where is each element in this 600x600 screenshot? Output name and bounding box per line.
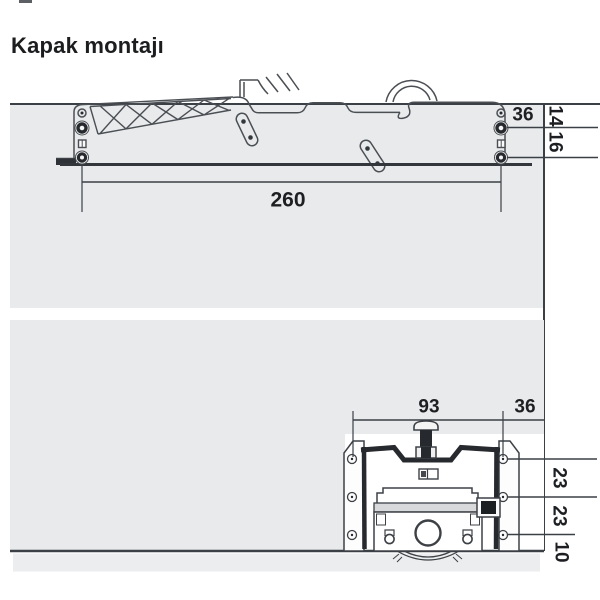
indicator-window bbox=[419, 469, 438, 479]
side-latch bbox=[477, 498, 500, 517]
lever-roller-arc bbox=[386, 81, 437, 102]
installation-diagram: 260 36 14 16 bbox=[0, 0, 600, 600]
dim-23-upper-label: 23 bbox=[549, 467, 570, 488]
dim-260-label: 260 bbox=[270, 189, 305, 212]
scan-artifact bbox=[19, 0, 32, 3]
roller-hub bbox=[416, 521, 441, 546]
dim-36-top-label: 36 bbox=[512, 105, 533, 126]
manual-page: Kapak montajı bbox=[0, 0, 600, 600]
dim-93-label: 93 bbox=[418, 397, 439, 418]
front-view-diagram: 93 36 23 23 10 bbox=[10, 320, 597, 572]
dim-23-lower-label: 23 bbox=[549, 505, 570, 526]
inner-cartridge bbox=[374, 488, 482, 551]
dim-10-label: 10 bbox=[551, 541, 572, 562]
housing-left-wall bbox=[364, 447, 365, 549]
front-bracket-detail bbox=[240, 73, 299, 97]
dim-16-label: 16 bbox=[545, 131, 566, 152]
dim-36-bottom-label: 36 bbox=[514, 397, 535, 418]
dim-14-label: 14 bbox=[545, 105, 566, 127]
cabinet-bottom-strip bbox=[13, 554, 540, 572]
